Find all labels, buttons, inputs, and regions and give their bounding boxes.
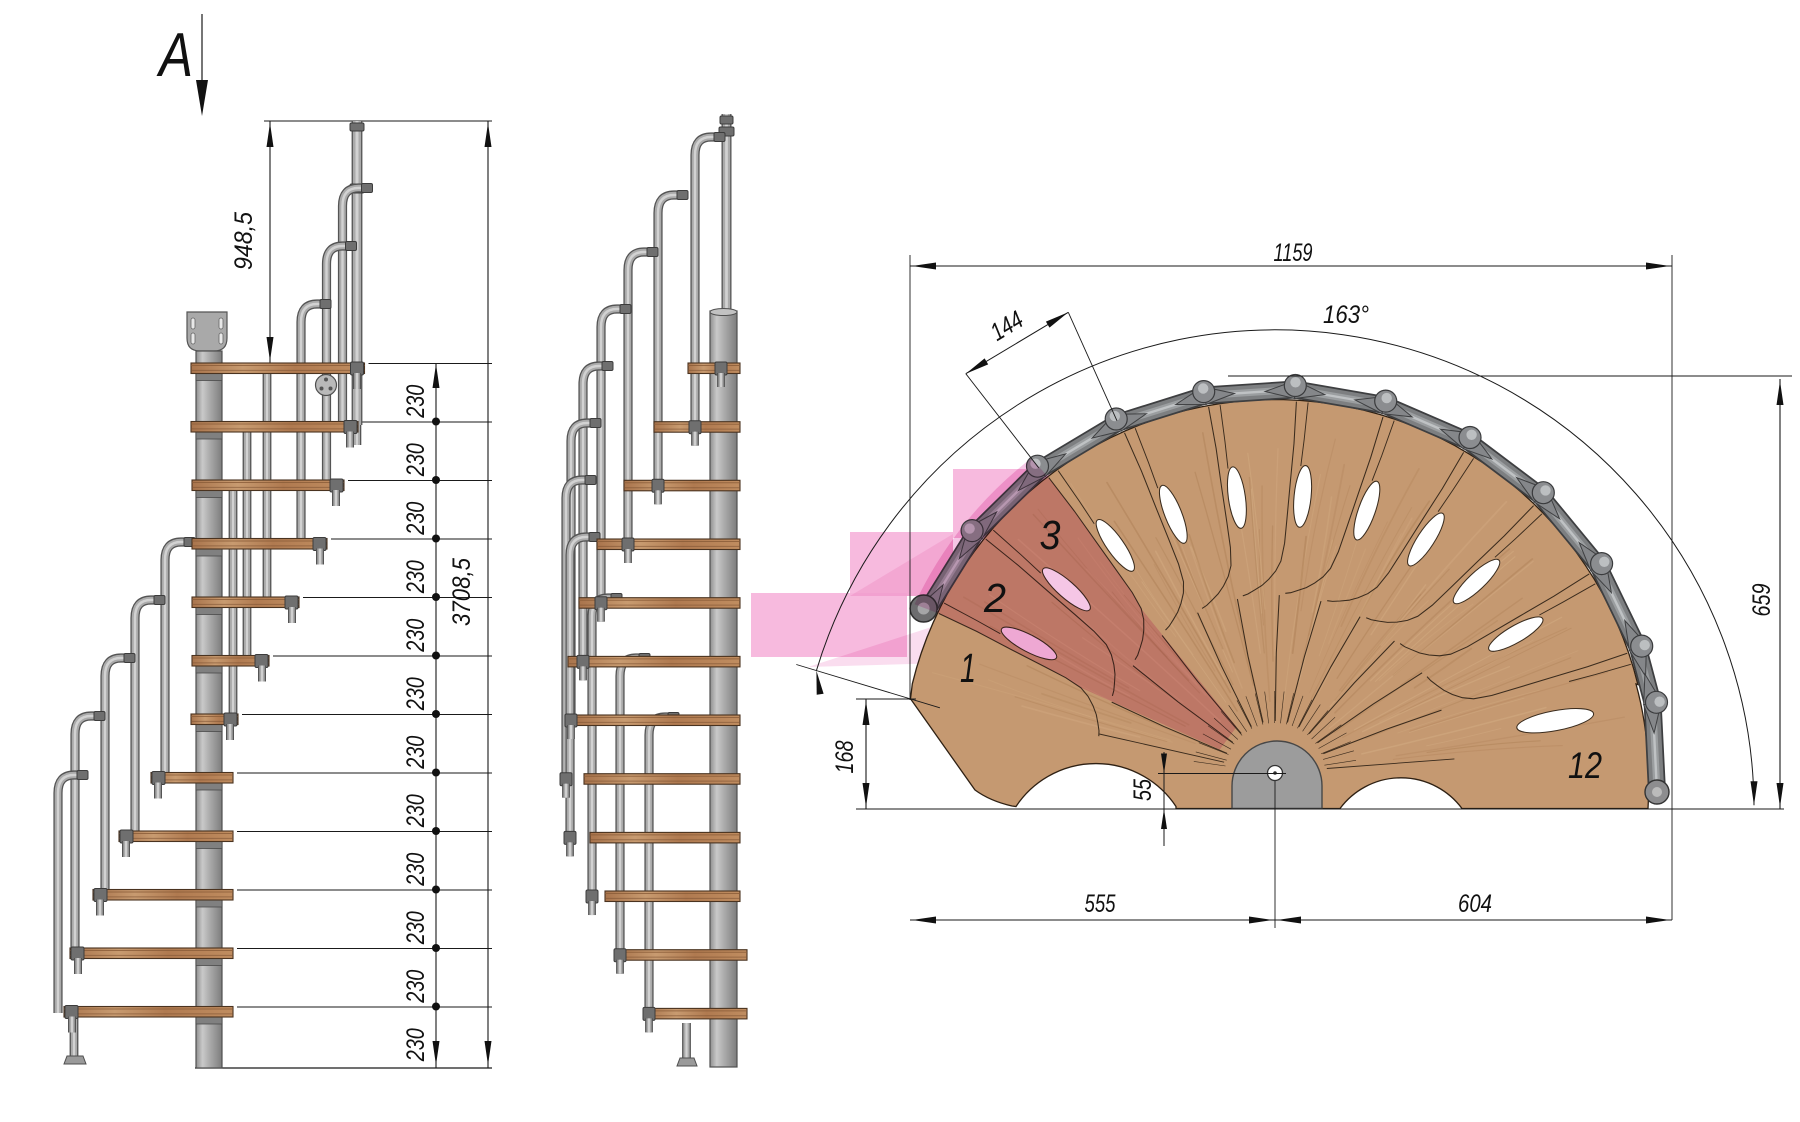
svg-text:168: 168 — [831, 740, 859, 773]
svg-text:948,5: 948,5 — [230, 212, 258, 270]
svg-text:3: 3 — [1040, 512, 1061, 558]
svg-text:230: 230 — [402, 560, 430, 594]
svg-text:604: 604 — [1458, 890, 1492, 918]
svg-text:230: 230 — [402, 677, 430, 711]
svg-text:55: 55 — [1129, 779, 1157, 801]
svg-text:555: 555 — [1085, 890, 1116, 918]
svg-text:2: 2 — [983, 575, 1006, 621]
svg-text:230: 230 — [402, 911, 430, 945]
svg-text:230: 230 — [402, 853, 430, 887]
svg-text:12: 12 — [1568, 745, 1602, 786]
svg-text:230: 230 — [402, 619, 430, 653]
svg-text:1: 1 — [960, 645, 976, 691]
svg-text:3708,5: 3708,5 — [448, 558, 476, 626]
svg-text:230: 230 — [402, 1028, 430, 1062]
svg-text:1159: 1159 — [1274, 239, 1313, 267]
svg-text:230: 230 — [402, 443, 430, 477]
svg-text:163°: 163° — [1323, 301, 1369, 329]
svg-text:230: 230 — [402, 385, 430, 419]
svg-text:A: A — [156, 21, 193, 90]
svg-text:230: 230 — [402, 736, 430, 770]
svg-text:230: 230 — [402, 794, 430, 828]
svg-text:230: 230 — [402, 970, 430, 1004]
svg-text:659: 659 — [1748, 583, 1776, 616]
svg-text:230: 230 — [402, 502, 430, 536]
